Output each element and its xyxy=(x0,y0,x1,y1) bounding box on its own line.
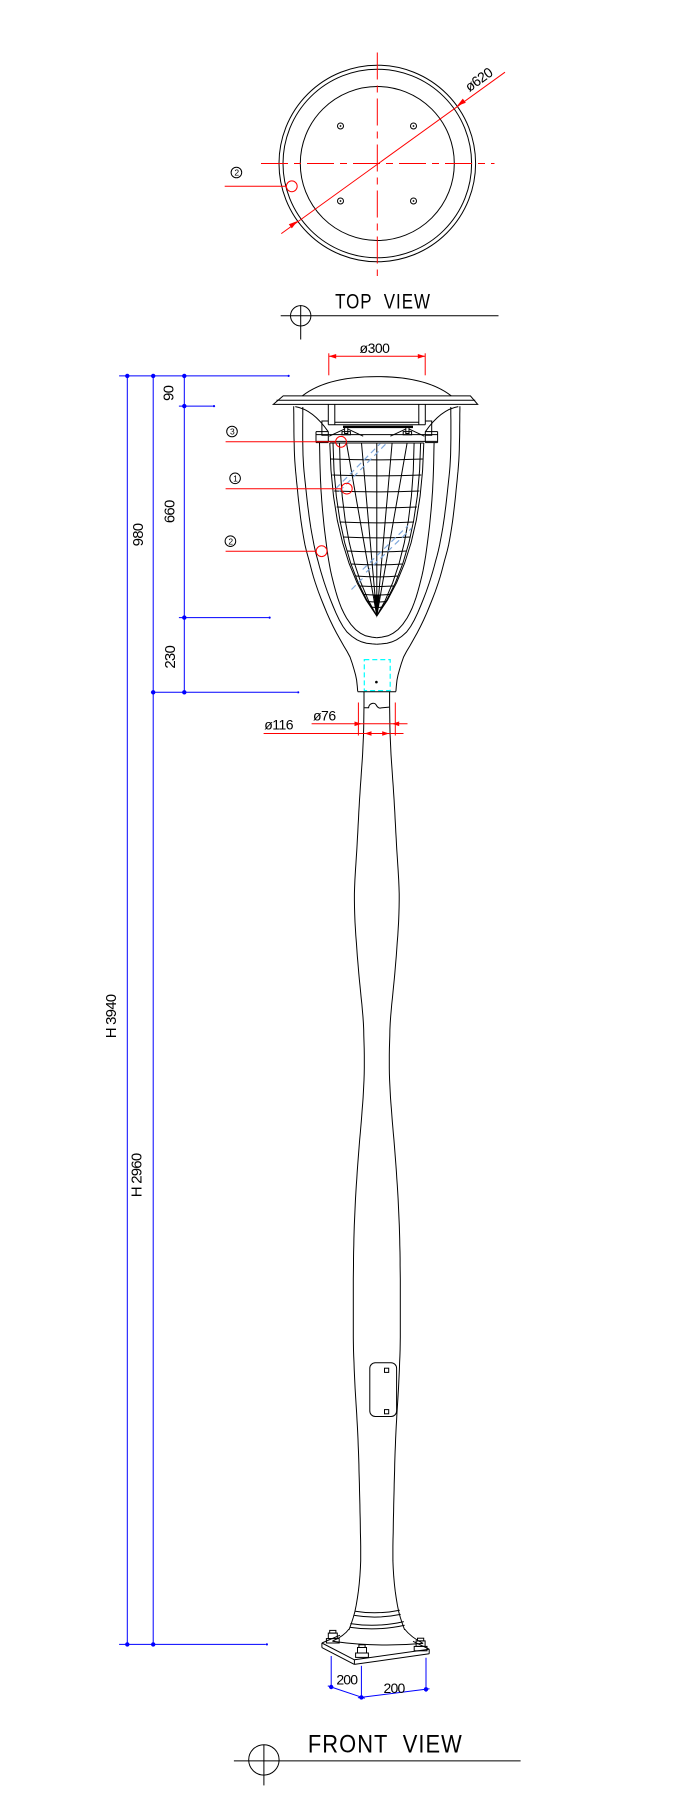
svg-text:200: 200 xyxy=(336,1671,358,1687)
svg-text:ø116: ø116 xyxy=(264,716,294,732)
svg-text:980: 980 xyxy=(130,523,147,546)
svg-text:ø300: ø300 xyxy=(360,340,391,356)
svg-text:200: 200 xyxy=(384,1680,406,1696)
svg-text:230: 230 xyxy=(162,646,179,669)
svg-text:90: 90 xyxy=(161,385,178,401)
svg-text:660: 660 xyxy=(162,500,179,523)
svg-text:H 2960: H 2960 xyxy=(129,1153,146,1197)
svg-text:ø76: ø76 xyxy=(313,708,336,724)
svg-text:FRONT VIEW: FRONT VIEW xyxy=(308,1730,463,1758)
svg-text:H 3940: H 3940 xyxy=(103,994,120,1038)
svg-text:TOP VIEW: TOP VIEW xyxy=(335,291,431,314)
